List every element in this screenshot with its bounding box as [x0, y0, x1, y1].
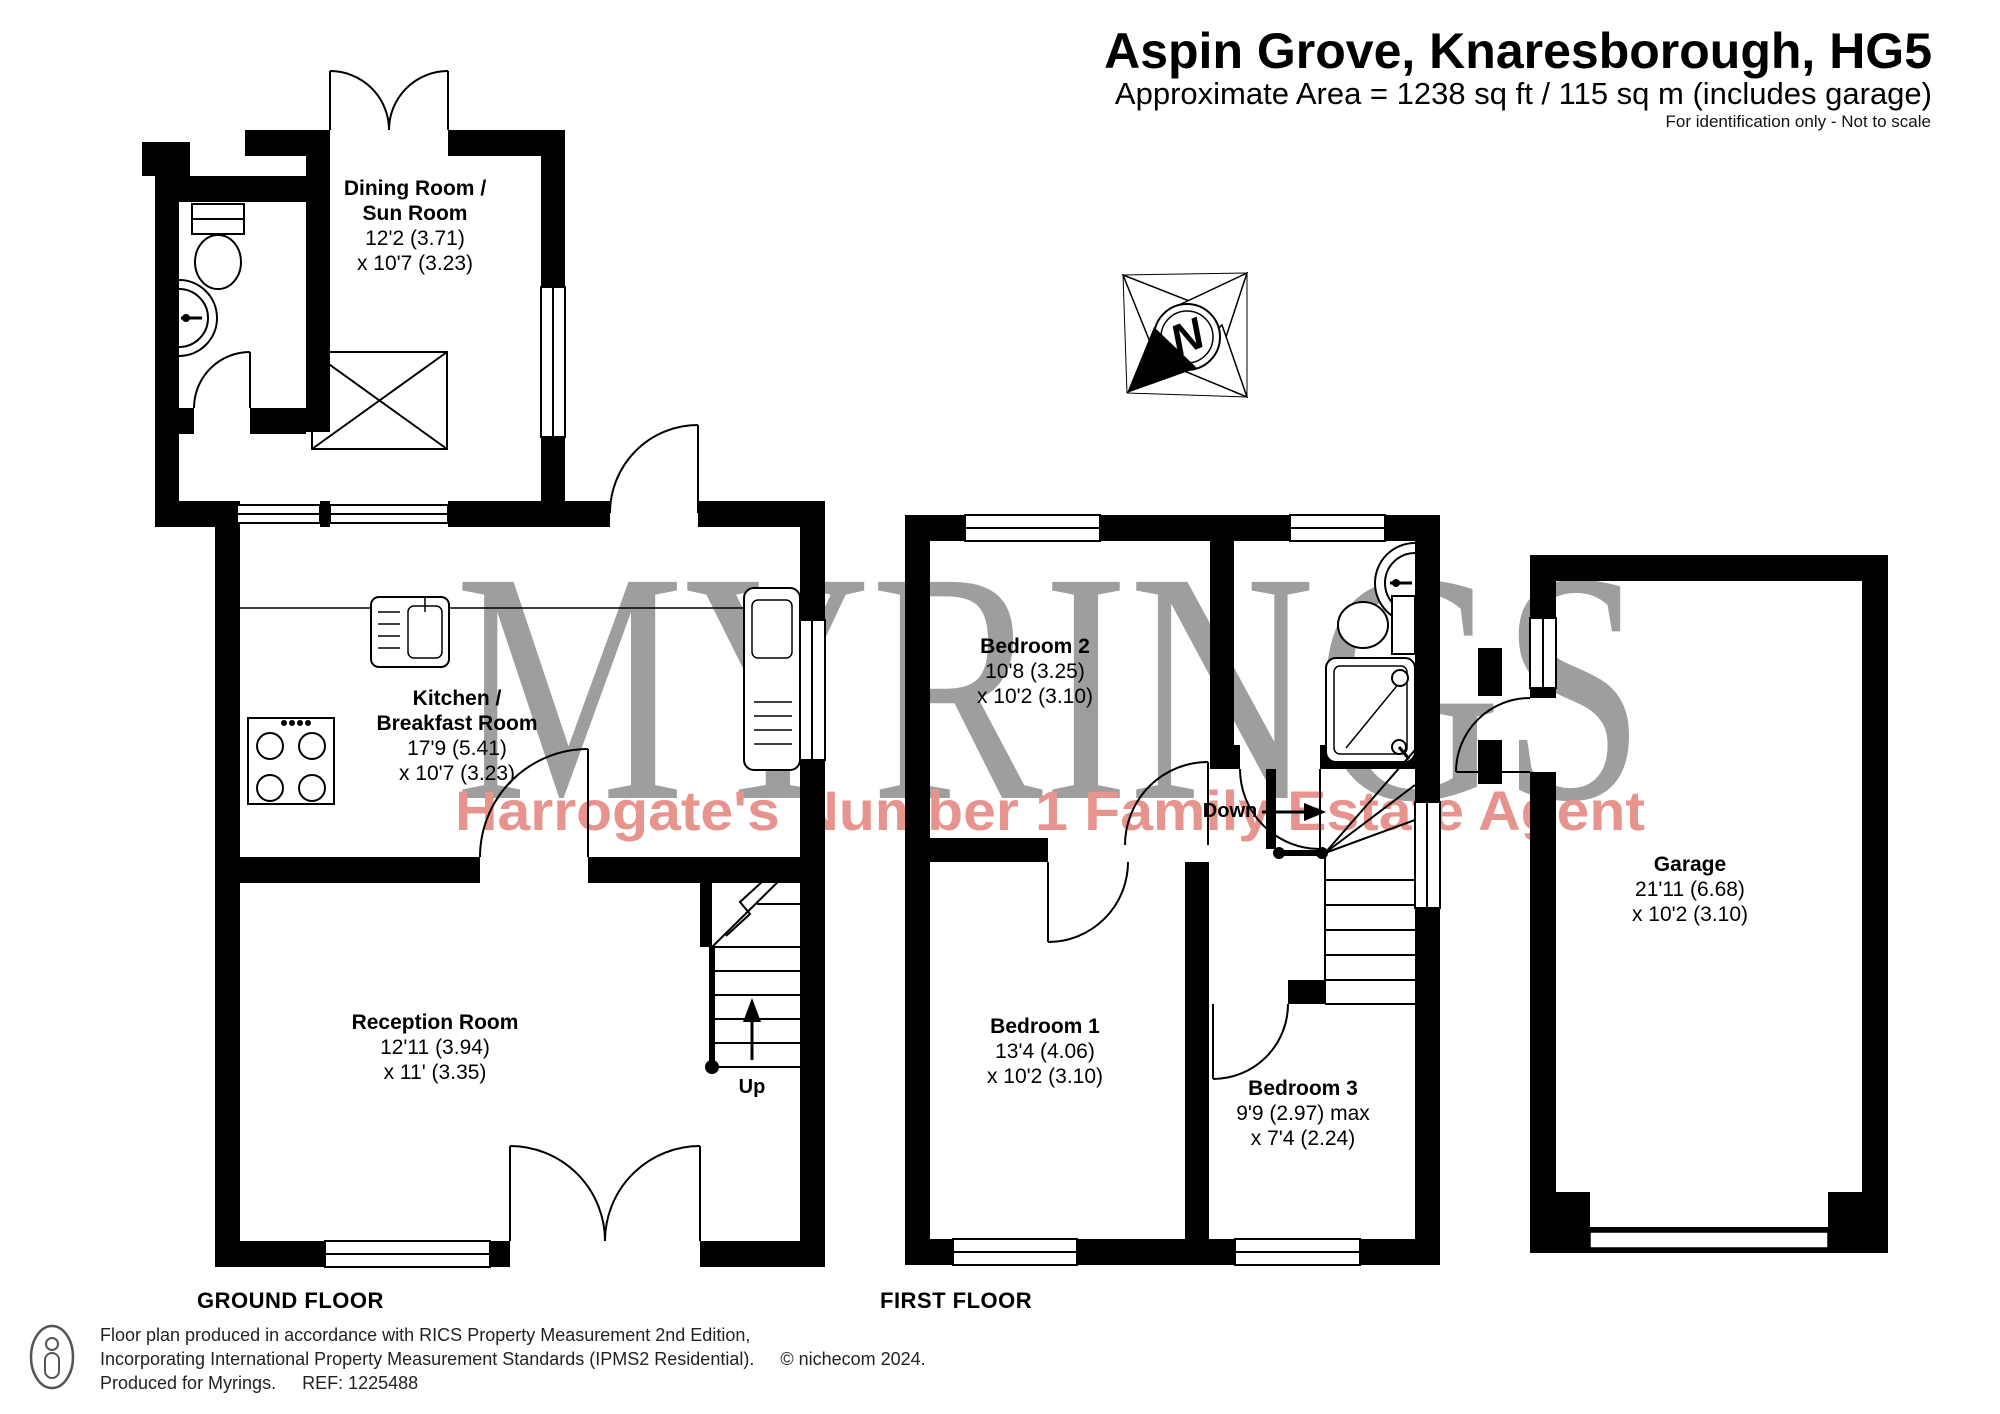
room-dimensions: x 11' (3.35): [352, 1060, 519, 1085]
room-label-kitchen: Kitchen / Breakfast Room 17'9 (5.41) x 1…: [376, 686, 537, 786]
room-name: Kitchen /: [376, 686, 537, 711]
footer-ref: REF: 1225488: [302, 1373, 418, 1393]
room-name: Sun Room: [344, 201, 486, 226]
room-label-bedroom3: Bedroom 3 9'9 (2.97) max x 7'4 (2.24): [1236, 1076, 1370, 1151]
room-dimensions: x 10'2 (3.10): [1632, 902, 1748, 927]
room-dimensions: x 10'2 (3.10): [987, 1064, 1103, 1089]
dining-table-icon: [312, 352, 447, 449]
stairs-up-label: Up: [739, 1076, 766, 1099]
watermark-tagline: Harrogate's Number 1 Family Estate Agent: [455, 779, 1645, 842]
room-name: Bedroom 3: [1236, 1076, 1370, 1101]
room-dimensions: 13'4 (4.06): [987, 1039, 1103, 1064]
room-dimensions: 12'2 (3.71): [344, 226, 486, 251]
tall-sink-unit-icon: [744, 588, 800, 770]
room-dimensions: 12'11 (3.94): [352, 1035, 519, 1060]
footer-produced-for: Produced for Myrings.: [100, 1373, 276, 1393]
room-label-dining: Dining Room / Sun Room 12'2 (3.71) x 10'…: [344, 176, 486, 276]
stairs-down-label: Down: [1203, 800, 1257, 823]
garage-door-panel: [1590, 1232, 1828, 1248]
room-name: Garage: [1632, 852, 1748, 877]
page-title: Aspin Grove, Knaresborough, HG5: [1104, 22, 1932, 80]
room-name: Bedroom 1: [987, 1014, 1103, 1039]
nichecom-logo-icon: [31, 1326, 73, 1388]
first-floor-label: FIRST FLOOR: [880, 1288, 1032, 1314]
page-subtitle: Approximate Area = 1238 sq ft / 115 sq m…: [1115, 76, 1932, 112]
room-dimensions: 10'8 (3.25): [977, 659, 1093, 684]
shower-icon: [1326, 658, 1415, 762]
room-label-reception: Reception Room 12'11 (3.94) x 11' (3.35): [352, 1010, 519, 1085]
room-dimensions: x 10'7 (3.23): [344, 251, 486, 276]
room-label-bedroom1: Bedroom 1 13'4 (4.06) x 10'2 (3.10): [987, 1014, 1103, 1089]
room-dimensions: 21'11 (6.68): [1632, 877, 1748, 902]
footer-standards-text: Incorporating International Property Mea…: [100, 1349, 754, 1369]
kitchen-sink-icon: [371, 597, 449, 667]
footer-line-3: Produced for Myrings.REF: 1225488: [100, 1373, 418, 1394]
footer-line-1: Floor plan produced in accordance with R…: [100, 1325, 750, 1346]
compass-rose-icon: N: [1123, 273, 1247, 397]
footer-copyright: © nichecom 2024.: [780, 1349, 925, 1369]
room-dimensions: 9'9 (2.97) max: [1236, 1101, 1370, 1126]
room-label-bedroom2: Bedroom 2 10'8 (3.25) x 10'2 (3.10): [977, 634, 1093, 709]
wash-basin-icon: [179, 280, 217, 356]
room-name: Bedroom 2: [977, 634, 1093, 659]
bathroom-toilet-icon: [1338, 596, 1415, 654]
ground-floor-label: GROUND FLOOR: [197, 1288, 384, 1314]
garage-window: [1530, 618, 1556, 688]
room-dimensions: x 7'4 (2.24): [1236, 1126, 1370, 1151]
room-dimensions: 17'9 (5.41): [376, 736, 537, 761]
footer-line-2: Incorporating International Property Mea…: [100, 1349, 926, 1370]
toilet-icon: [192, 204, 244, 289]
scale-note: For identification only - Not to scale: [1665, 112, 1931, 132]
room-name: Reception Room: [352, 1010, 519, 1035]
floorplan-page: MYRINGS Harrogate's Number 1 Family Esta…: [0, 0, 2000, 1414]
room-dimensions: x 10'7 (3.23): [376, 761, 537, 786]
room-name: Dining Room /: [344, 176, 486, 201]
room-dimensions: x 10'2 (3.10): [977, 684, 1093, 709]
hob-icon: [248, 718, 334, 804]
staircase-up: [705, 862, 800, 1074]
room-label-garage: Garage 21'11 (6.68) x 10'2 (3.10): [1632, 852, 1748, 927]
room-name: Breakfast Room: [376, 711, 537, 736]
